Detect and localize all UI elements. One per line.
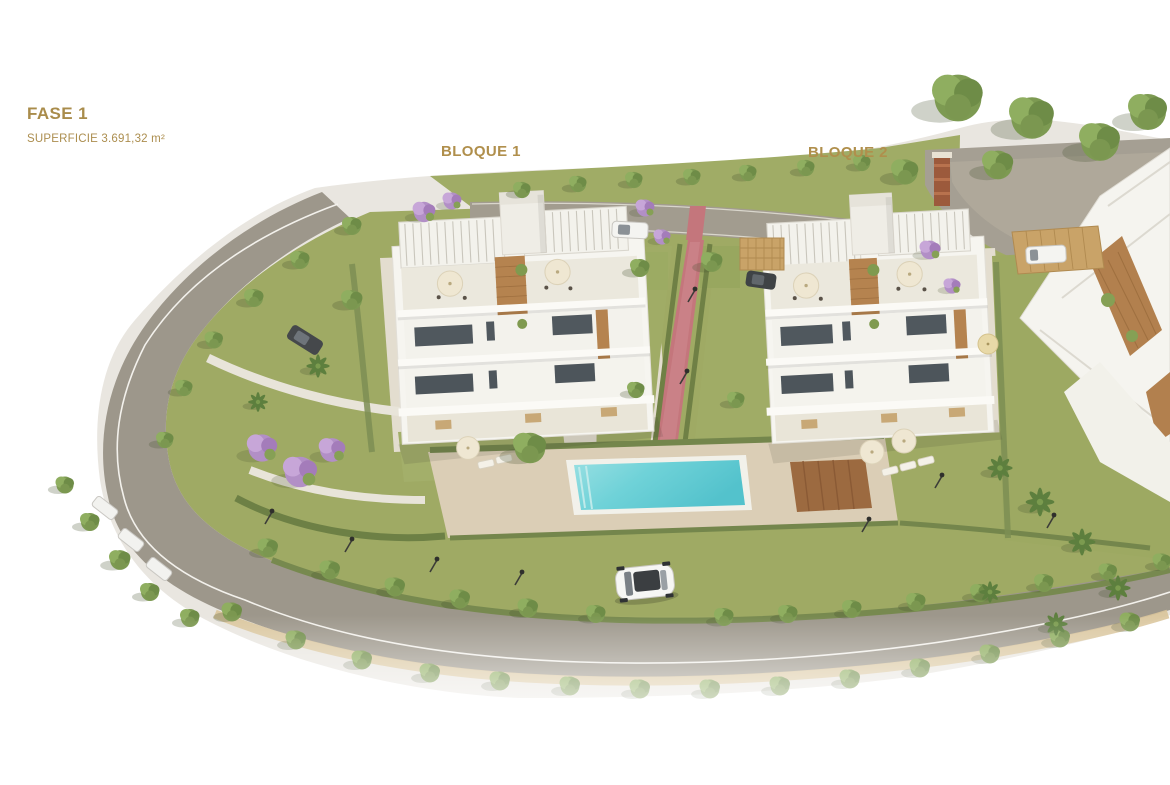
bottom-fade xyxy=(0,615,1170,785)
pool xyxy=(566,455,752,515)
white-car-top-road xyxy=(612,221,649,239)
entrance-monument xyxy=(932,152,952,206)
phase-label: FASE 1 xyxy=(27,104,88,124)
bloque2-building xyxy=(756,188,1003,464)
site-plan-render xyxy=(0,0,1170,785)
block1-label: BLOQUE 1 xyxy=(441,143,521,160)
surface-area-label: SUPERFICIE 3.691,32 m² xyxy=(27,133,165,145)
block2-label: BLOQUE 2 xyxy=(808,144,888,161)
architectural-render-page: FASE 1 SUPERFICIE 3.691,32 m² BLOQUE 1 B… xyxy=(0,0,1170,785)
wooden-deck xyxy=(790,459,872,512)
white-van xyxy=(1026,245,1067,264)
carport-right xyxy=(1012,226,1104,274)
